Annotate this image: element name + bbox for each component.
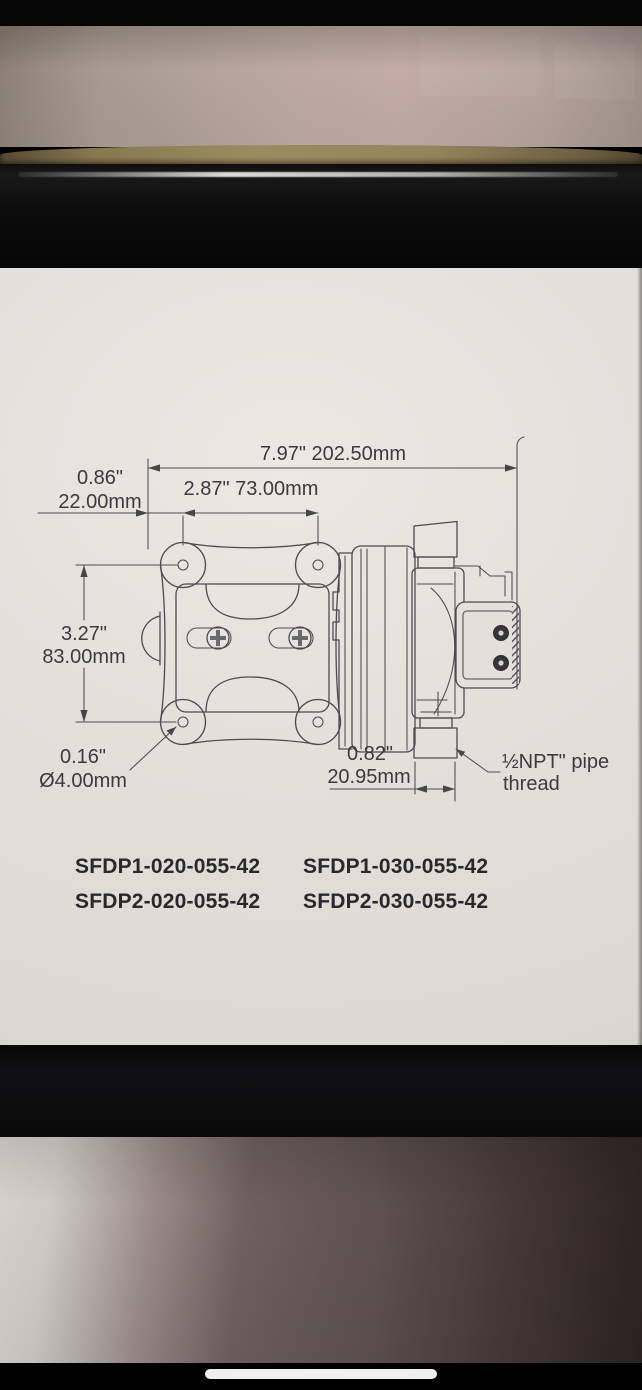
bracket-bottom-arch: [206, 677, 299, 712]
bracket-lobe: [296, 700, 341, 745]
mounting-hole: [313, 717, 323, 727]
mounting-hole: [178, 717, 188, 727]
phillips-cross-icon: [210, 630, 308, 646]
cap-hatch: [512, 606, 519, 684]
threaded-port-bottom: [414, 728, 457, 758]
dim-height-inches: 3.27": [61, 623, 107, 645]
dim-hole-spacing: 2.87" 73.00mm: [184, 478, 319, 500]
note-pipe-thread-line2: thread: [503, 773, 560, 795]
bottom-black-bar: [0, 1363, 642, 1390]
dim-overall-length: 7.97" 202.50mm: [260, 443, 406, 465]
dim-hole-dia-inches: 0.16": [60, 746, 106, 768]
model-number: SFDP1-030-055-42: [303, 855, 488, 879]
bracket-top-arch: [206, 584, 299, 619]
dim-port-inches: 0.82": [347, 743, 393, 765]
pressure-switch-cap: [456, 602, 520, 688]
model-number: SFDP2-020-055-42: [75, 890, 260, 914]
dim-height-mm: 83.00mm: [42, 646, 125, 668]
mounting-hole: [178, 560, 188, 570]
box-black-bottom-band: [0, 1045, 642, 1137]
dim-offset-mm: 22.00mm: [58, 491, 141, 513]
mounting-bracket: [142, 543, 341, 745]
model-number: SFDP2-030-055-42: [303, 890, 488, 914]
bracket-side-dome: [142, 612, 160, 665]
dimension-annotations: 7.97" 202.50mm 0.86" 22.00mm 2.87" 73.00…: [38, 437, 609, 801]
bracket-lobe: [296, 543, 341, 588]
home-indicator[interactable]: [205, 1369, 437, 1379]
note-pipe-thread-line1: ½NPT" pipe: [502, 751, 609, 773]
dim-port-mm: 20.95mm: [327, 766, 410, 788]
threaded-port-top: [414, 522, 457, 558]
photo-of-pump-box: 7.97" 202.50mm 0.86" 22.00mm 2.87" 73.00…: [0, 0, 642, 1390]
dim-offset-inches: 0.86": [77, 467, 123, 489]
reflective-table-surface: [0, 1137, 642, 1363]
dim-hole-dia-mm: Ø4.00mm: [39, 770, 127, 792]
surface-shading: [0, 1137, 642, 1363]
motor-section: [333, 546, 415, 752]
model-number: SFDP1-020-055-42: [75, 855, 260, 879]
mounting-hole: [313, 560, 323, 570]
